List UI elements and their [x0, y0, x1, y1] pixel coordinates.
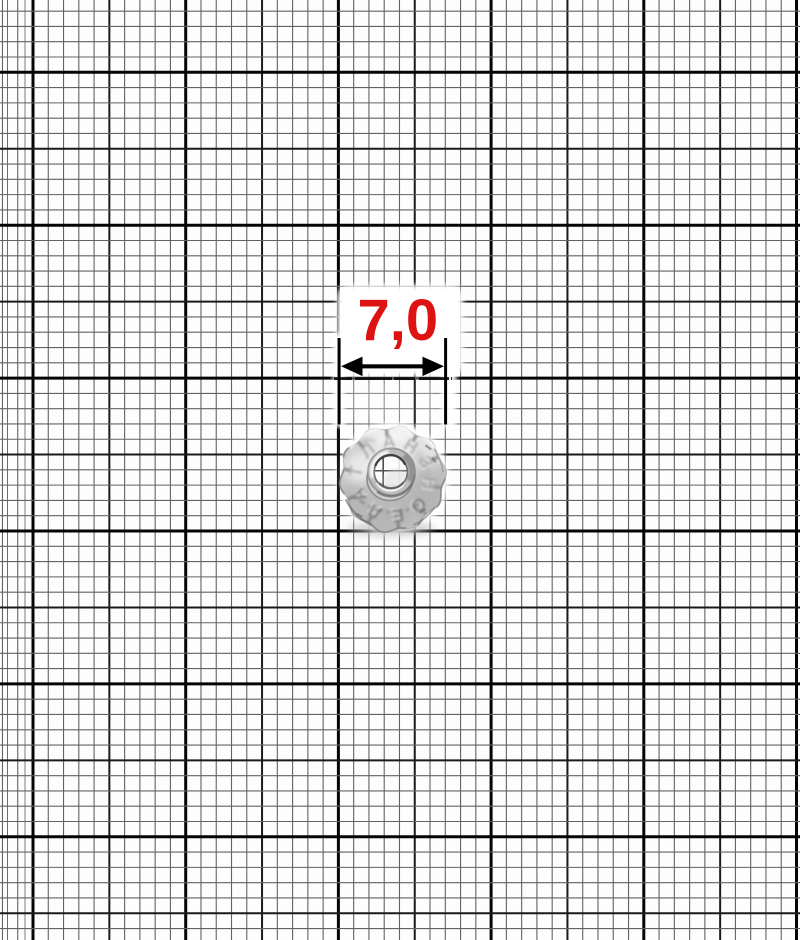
svg-text:Н: Н [418, 476, 440, 492]
svg-text:7,0: 7,0 [358, 288, 439, 353]
